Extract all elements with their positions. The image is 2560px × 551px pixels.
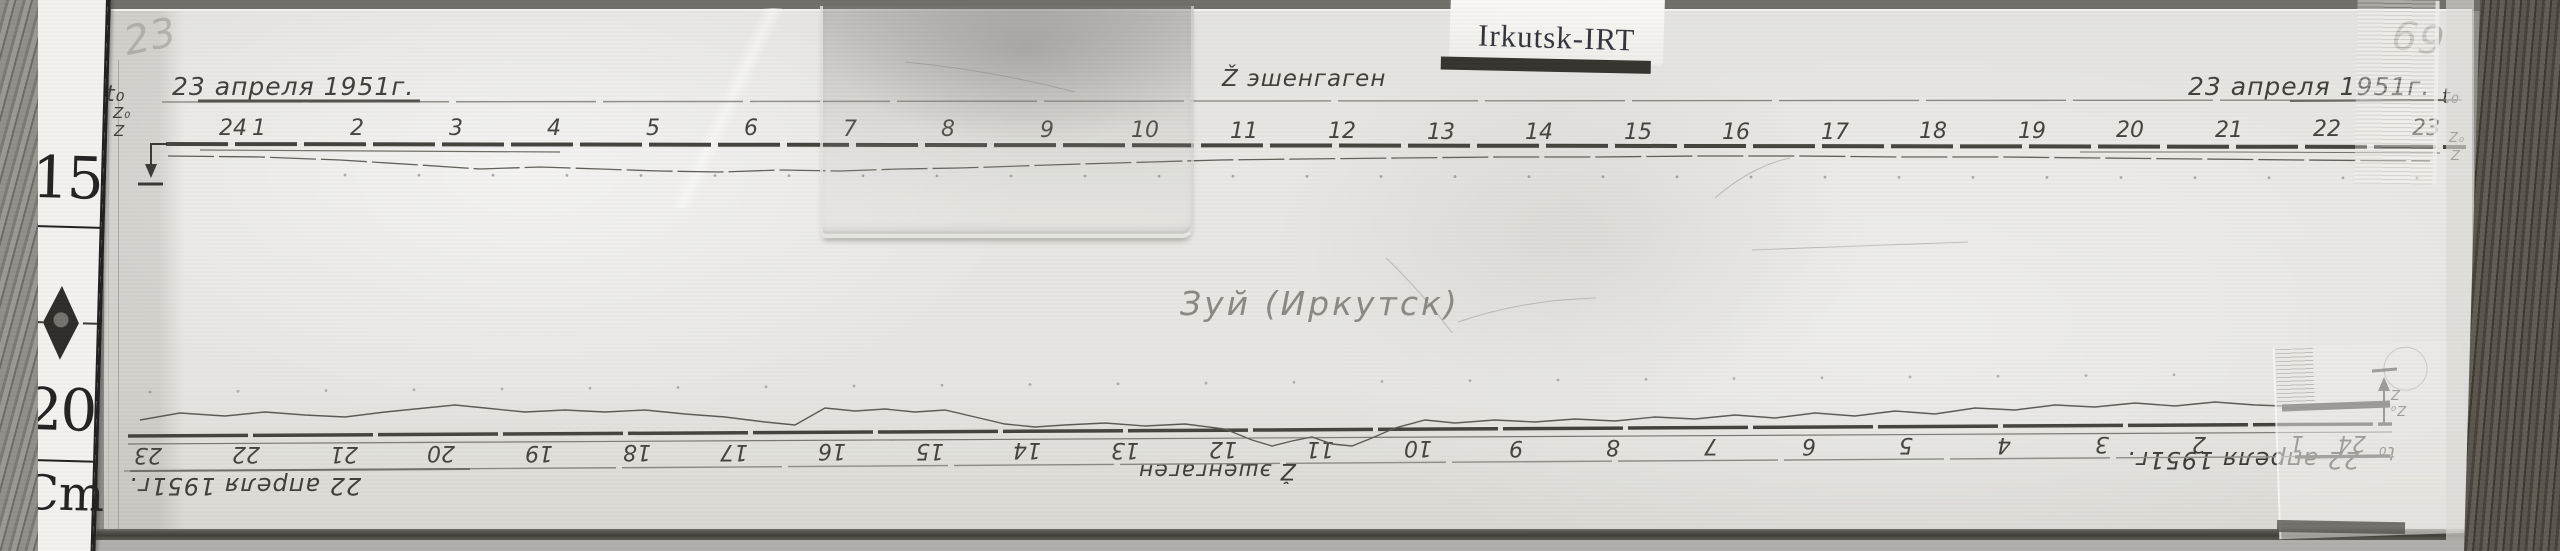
tape-strip-bottom-right	[2273, 341, 2470, 540]
ruler-divider	[30, 225, 102, 229]
ruler-diamond-tick-right	[83, 322, 97, 324]
wood-table-left	[0, 0, 38, 551]
station-label-text: Irkutsk-IRT	[1478, 18, 1636, 59]
seismogram-traces-svg	[0, 0, 2560, 551]
station-label-tag: Irkutsk-IRT	[1449, 0, 1665, 65]
archival-seismogram-photo: 23 69 t₀ 23 апреля 1951г. Ž эшенгаген 23…	[0, 0, 2560, 551]
ruler-diamond-icon	[42, 285, 80, 360]
time-arrow-down-icon	[138, 144, 196, 184]
tape-hatch-marks	[2275, 348, 2315, 403]
tape-strip-top-right	[2354, 0, 2439, 185]
glass-plate-overlay	[820, 6, 1194, 238]
ruler-mark-15: 15	[30, 143, 104, 213]
